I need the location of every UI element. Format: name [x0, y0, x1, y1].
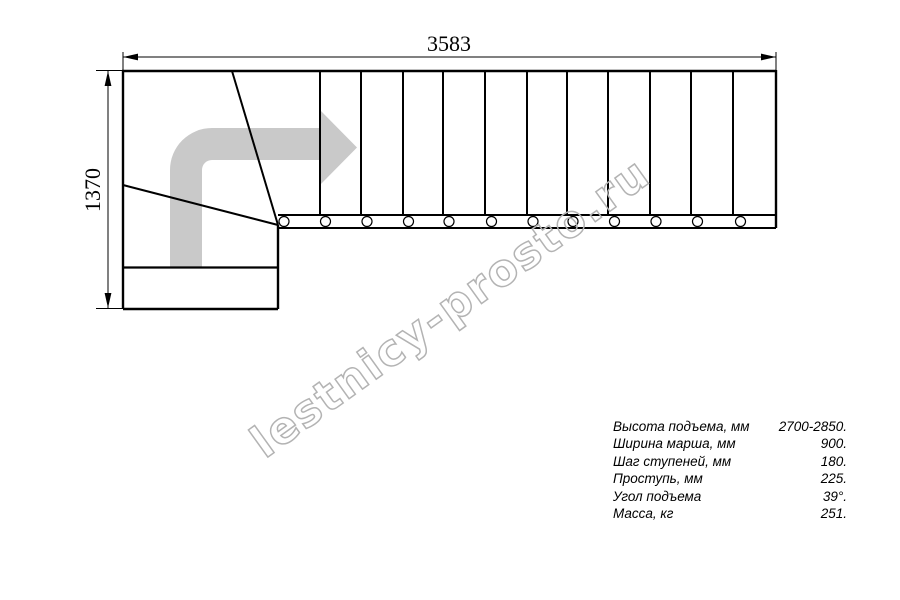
watermark-text: lestnicy-prosto.ru [241, 148, 659, 468]
step-lines [320, 71, 733, 215]
width-dimension-label: 3583 [427, 31, 471, 56]
spec-row: Шаг ступеней, мм 180. [613, 453, 847, 470]
height-dimension-label: 1370 [80, 168, 105, 212]
spec-row: Ширина марша, мм 900. [613, 435, 847, 452]
spec-value: 251. [821, 505, 847, 522]
dim-arrow-right-icon [761, 54, 776, 61]
spec-row: Масса, кг 251. [613, 505, 847, 522]
width-dimension: 3583 [123, 31, 776, 70]
spec-row: Угол подъема 39°. [613, 488, 847, 505]
dim-arrow-up-icon [105, 71, 112, 86]
spec-value: 225. [821, 470, 847, 487]
stringer-hole-circles [279, 217, 746, 227]
dim-arrow-down-icon [105, 293, 112, 308]
spec-value: 900. [821, 435, 847, 452]
spec-value: 2700-2850. [779, 418, 847, 435]
spec-label: Высота подъема, мм [613, 418, 749, 435]
staircase-drawing-page: 3583 1370 lestnicy-prosto.ru Высота подъ… [0, 0, 900, 600]
spec-label: Шаг ступеней, мм [613, 453, 731, 470]
spec-label: Угол подъема [613, 488, 701, 505]
dim-arrow-left-icon [123, 54, 138, 61]
spec-label: Проступь, мм [613, 470, 703, 487]
spec-value: 39°. [823, 488, 847, 505]
height-dimension: 1370 [80, 71, 122, 309]
spec-value: 180. [821, 453, 847, 470]
spec-row: Проступь, мм 225. [613, 470, 847, 487]
spec-label: Ширина марша, мм [613, 435, 736, 452]
staircase-outline [122, 70, 776, 309]
direction-arrow [170, 110, 357, 267]
spec-label: Масса, кг [613, 505, 673, 522]
spec-row: Высота подъема, мм 2700-2850. [613, 418, 847, 435]
spec-table: Высота подъема, мм 2700-2850. Ширина мар… [613, 418, 847, 522]
